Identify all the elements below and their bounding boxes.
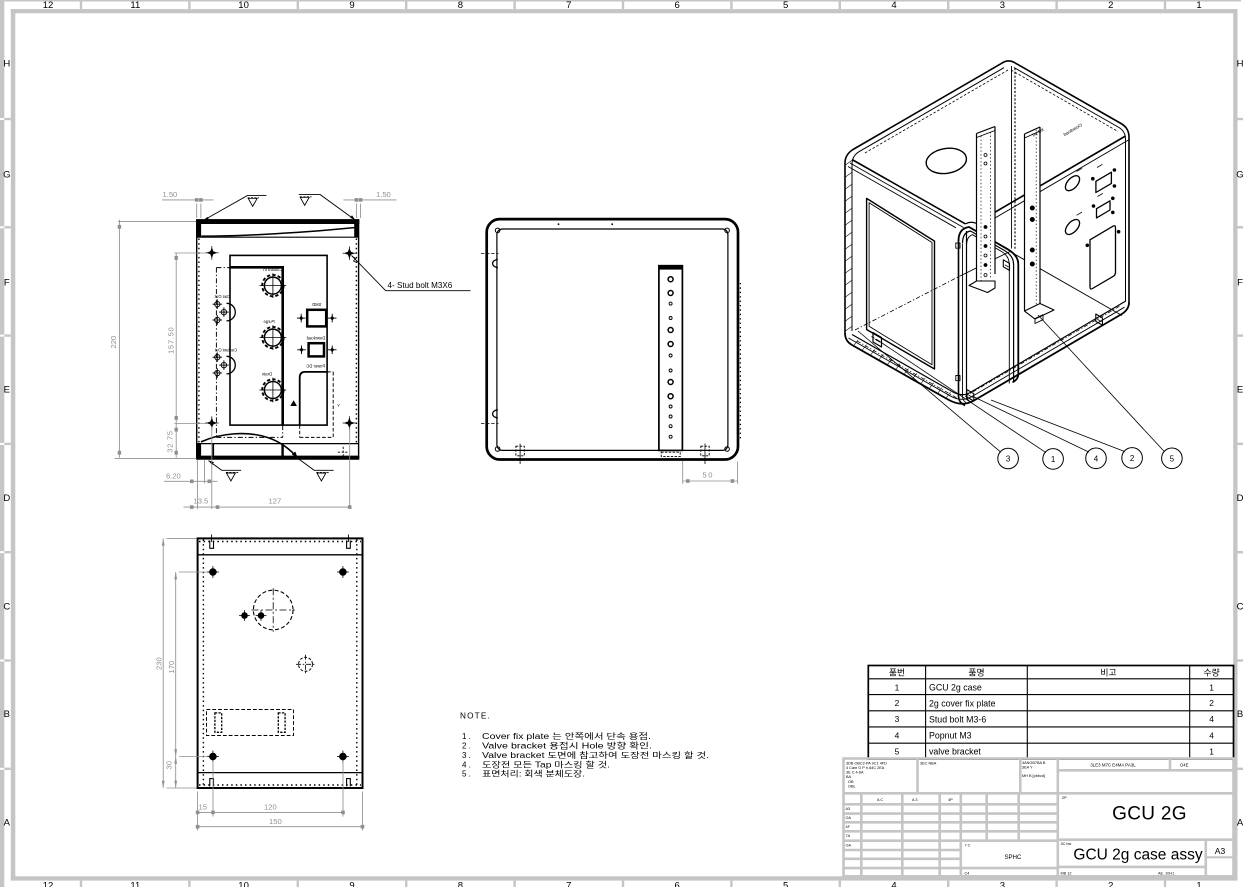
svg-text:3LE3 M7C E4MA PA3L: 3LE3 M7C E4MA PA3L bbox=[1090, 763, 1136, 768]
svg-text:4: 4 bbox=[891, 880, 896, 887]
svg-text:4ANGB7BA B: 4ANGB7BA B bbox=[1022, 761, 1046, 765]
svg-text:Valve bracket 도면에 참고하여 도장전 마스킹: Valve bracket 도면에 참고하여 도장전 마스킹 할 것. bbox=[482, 750, 709, 760]
svg-text:7: 7 bbox=[566, 880, 571, 887]
svg-text:SPHC: SPHC bbox=[1005, 855, 1022, 861]
svg-text:150: 150 bbox=[269, 817, 282, 826]
svg-text:11: 11 bbox=[130, 0, 140, 11]
svg-text:2P: 2P bbox=[1062, 796, 1067, 800]
svg-text:Power DC: Power DC bbox=[306, 363, 325, 368]
svg-text:Gas Out: Gas Out bbox=[214, 294, 230, 299]
svg-text:4- Stud bolt M3X6: 4- Stud bolt M3X6 bbox=[388, 281, 453, 290]
svg-text:3: 3 bbox=[1000, 880, 1005, 887]
svg-text:A: A bbox=[1237, 818, 1243, 829]
svg-text:E: E bbox=[4, 385, 10, 396]
svg-text:7: 7 bbox=[566, 0, 571, 11]
svg-text:품번: 품번 bbox=[889, 667, 905, 677]
svg-text:OA: OA bbox=[846, 844, 852, 848]
svg-text:Popnut M3: Popnut M3 bbox=[929, 731, 972, 741]
svg-text:5: 5 bbox=[783, 0, 788, 11]
svg-text:4P: 4P bbox=[948, 798, 953, 802]
svg-text:MH B [pbbcd]: MH B [pbbcd] bbox=[1022, 774, 1045, 778]
svg-text:Coolant Out: Coolant Out bbox=[214, 347, 237, 352]
svg-text:4 Cam G P h A4C 2EA: 4 Cam G P h A4C 2EA bbox=[846, 766, 885, 770]
svg-text:3EC NBA: 3EC NBA bbox=[920, 762, 937, 766]
svg-text:1: 1 bbox=[1051, 455, 1056, 464]
svg-text:1: 1 bbox=[1209, 747, 1214, 757]
svg-text:Cover fix plate 는 안쪽에서 단속 용접.: Cover fix plate 는 안쪽에서 단속 용접. bbox=[482, 731, 651, 741]
svg-text:4: 4 bbox=[1209, 731, 1214, 741]
svg-text:1: 1 bbox=[1196, 880, 1201, 887]
svg-text:1.50: 1.50 bbox=[376, 190, 391, 199]
svg-text:5: 5 bbox=[1170, 455, 1175, 464]
svg-text:4: 4 bbox=[891, 0, 896, 11]
svg-text:4: 4 bbox=[895, 731, 900, 741]
svg-text:2 .: 2 . bbox=[462, 742, 471, 751]
svg-text:도장전 모든 Tap 마스킹 할 것.: 도장전 모든 Tap 마스킹 할 것. bbox=[482, 760, 610, 770]
svg-text:OA: OA bbox=[846, 816, 852, 820]
svg-text:Download: Download bbox=[306, 335, 325, 340]
svg-text:A C: A C bbox=[877, 798, 883, 802]
svg-text:2: 2 bbox=[1108, 880, 1113, 887]
svg-text:3: 3 bbox=[895, 714, 900, 724]
svg-text:220: 220 bbox=[109, 336, 118, 349]
svg-text:Drain: Drain bbox=[261, 371, 272, 376]
svg-text:GCU 2g case: GCU 2g case bbox=[929, 683, 982, 693]
svg-text:수량: 수량 bbox=[1204, 666, 1220, 677]
svg-text:4F: 4F bbox=[846, 825, 851, 829]
svg-text:B: B bbox=[1237, 709, 1243, 720]
svg-text:8: 8 bbox=[458, 0, 463, 11]
svg-text:2: 2 bbox=[895, 698, 900, 708]
svg-text:12: 12 bbox=[43, 880, 54, 887]
svg-text:GCU 2G: GCU 2G bbox=[1112, 804, 1187, 825]
svg-text:비고: 비고 bbox=[1100, 667, 1116, 677]
svg-text:5 .: 5 . bbox=[462, 770, 471, 779]
svg-text:157.50: 157.50 bbox=[167, 327, 176, 354]
svg-text:3: 3 bbox=[1006, 455, 1011, 464]
svg-text:2: 2 bbox=[1130, 454, 1135, 463]
svg-text:A 3: A 3 bbox=[912, 798, 918, 802]
svg-text:NOTE.: NOTE. bbox=[460, 712, 491, 721]
svg-text:1 .: 1 . bbox=[462, 732, 471, 741]
svg-text:D: D bbox=[3, 493, 10, 504]
svg-text:50: 50 bbox=[703, 470, 714, 479]
svg-text:13.5: 13.5 bbox=[194, 497, 209, 506]
svg-text:H: H bbox=[1237, 59, 1243, 70]
svg-text:3: 3 bbox=[1000, 0, 1005, 11]
svg-text:3EA Y: 3EA Y bbox=[1022, 766, 1033, 770]
svg-text:4 .: 4 . bbox=[462, 761, 471, 770]
svg-text:5: 5 bbox=[895, 747, 900, 757]
svg-text:B: B bbox=[4, 709, 10, 720]
svg-text:G: G bbox=[1236, 170, 1243, 181]
svg-text:120: 120 bbox=[264, 803, 277, 812]
svg-text:G: G bbox=[3, 170, 10, 181]
svg-text:3DB OBC2-PA 9C1 4FD: 3DB OBC2-PA 9C1 4FD bbox=[846, 762, 887, 766]
svg-text:SMD: SMD bbox=[312, 302, 321, 307]
svg-text:4: 4 bbox=[1094, 455, 1099, 464]
svg-text:3 .: 3 . bbox=[462, 751, 471, 760]
svg-text:32.75: 32.75 bbox=[166, 430, 175, 453]
svg-text:F: F bbox=[4, 278, 10, 289]
svg-text:230: 230 bbox=[155, 657, 164, 670]
svg-text:C: C bbox=[1237, 602, 1243, 613]
svg-text:3C bw: 3C bw bbox=[1061, 842, 1072, 846]
svg-text:BA: BA bbox=[846, 775, 852, 779]
svg-text:6: 6 bbox=[675, 880, 680, 887]
svg-text:10: 10 bbox=[238, 0, 249, 11]
svg-text:A3: A3 bbox=[1215, 846, 1226, 856]
svg-text:7A: 7A bbox=[846, 834, 851, 838]
svg-text:15: 15 bbox=[199, 803, 207, 812]
svg-text:6.20: 6.20 bbox=[166, 471, 181, 480]
svg-text:4: 4 bbox=[1209, 714, 1214, 724]
svg-text:10: 10 bbox=[238, 880, 249, 887]
svg-text:F: F bbox=[1237, 278, 1243, 289]
svg-text:6: 6 bbox=[675, 0, 680, 11]
svg-text:127: 127 bbox=[269, 497, 282, 506]
svg-text:12: 12 bbox=[43, 0, 54, 11]
svg-text:9: 9 bbox=[349, 880, 354, 887]
svg-text:3E C 4-6A: 3E C 4-6A bbox=[846, 771, 864, 775]
svg-text:1: 1 bbox=[895, 682, 900, 692]
svg-text:2: 2 bbox=[1209, 698, 1214, 708]
svg-text:7 C: 7 C bbox=[965, 844, 971, 848]
svg-text:1: 1 bbox=[1196, 0, 1201, 11]
svg-text:C: C bbox=[3, 602, 10, 613]
svg-text:Valve bracket 용접시 Hole 방향 확인.: Valve bracket 용접시 Hole 방향 확인. bbox=[482, 741, 652, 751]
svg-text:OB: OB bbox=[848, 780, 854, 784]
svg-text:A3: A3 bbox=[846, 807, 851, 811]
svg-text:AE. 10H1: AE. 10H1 bbox=[1158, 872, 1174, 876]
svg-text:11: 11 bbox=[130, 880, 140, 887]
svg-text:표면처리: 회색 분체도장.: 표면처리: 회색 분체도장. bbox=[482, 769, 585, 779]
svg-text:OBL: OBL bbox=[848, 785, 856, 789]
svg-text:C4: C4 bbox=[965, 872, 970, 876]
svg-text:2: 2 bbox=[1108, 0, 1113, 11]
svg-text:E: E bbox=[1237, 385, 1243, 396]
svg-text:H: H bbox=[3, 59, 10, 70]
svg-text:Purge: Purge bbox=[263, 319, 275, 324]
svg-text:1: 1 bbox=[1209, 682, 1214, 692]
svg-text:Stud bolt M3-6: Stud bolt M3-6 bbox=[929, 714, 986, 724]
svg-text:2g cover fix plate: 2g cover fix plate bbox=[929, 698, 996, 708]
svg-text:1.50: 1.50 bbox=[163, 190, 178, 199]
svg-text:MB 12: MB 12 bbox=[1061, 872, 1072, 876]
svg-text:A: A bbox=[4, 818, 11, 829]
svg-text:O4E: O4E bbox=[1180, 763, 1189, 768]
svg-text:품명: 품명 bbox=[968, 667, 984, 677]
svg-text:valve bracket: valve bracket bbox=[929, 747, 981, 757]
svg-text:8: 8 bbox=[458, 880, 463, 887]
svg-text:Coolant In: Coolant In bbox=[263, 267, 283, 272]
svg-text:170: 170 bbox=[167, 661, 176, 674]
svg-text:GCU 2g case assy: GCU 2g case assy bbox=[1073, 847, 1202, 864]
svg-text:30: 30 bbox=[165, 761, 174, 769]
svg-text:D: D bbox=[1237, 493, 1243, 504]
svg-text:5: 5 bbox=[783, 880, 788, 887]
svg-text:9: 9 bbox=[349, 0, 354, 11]
